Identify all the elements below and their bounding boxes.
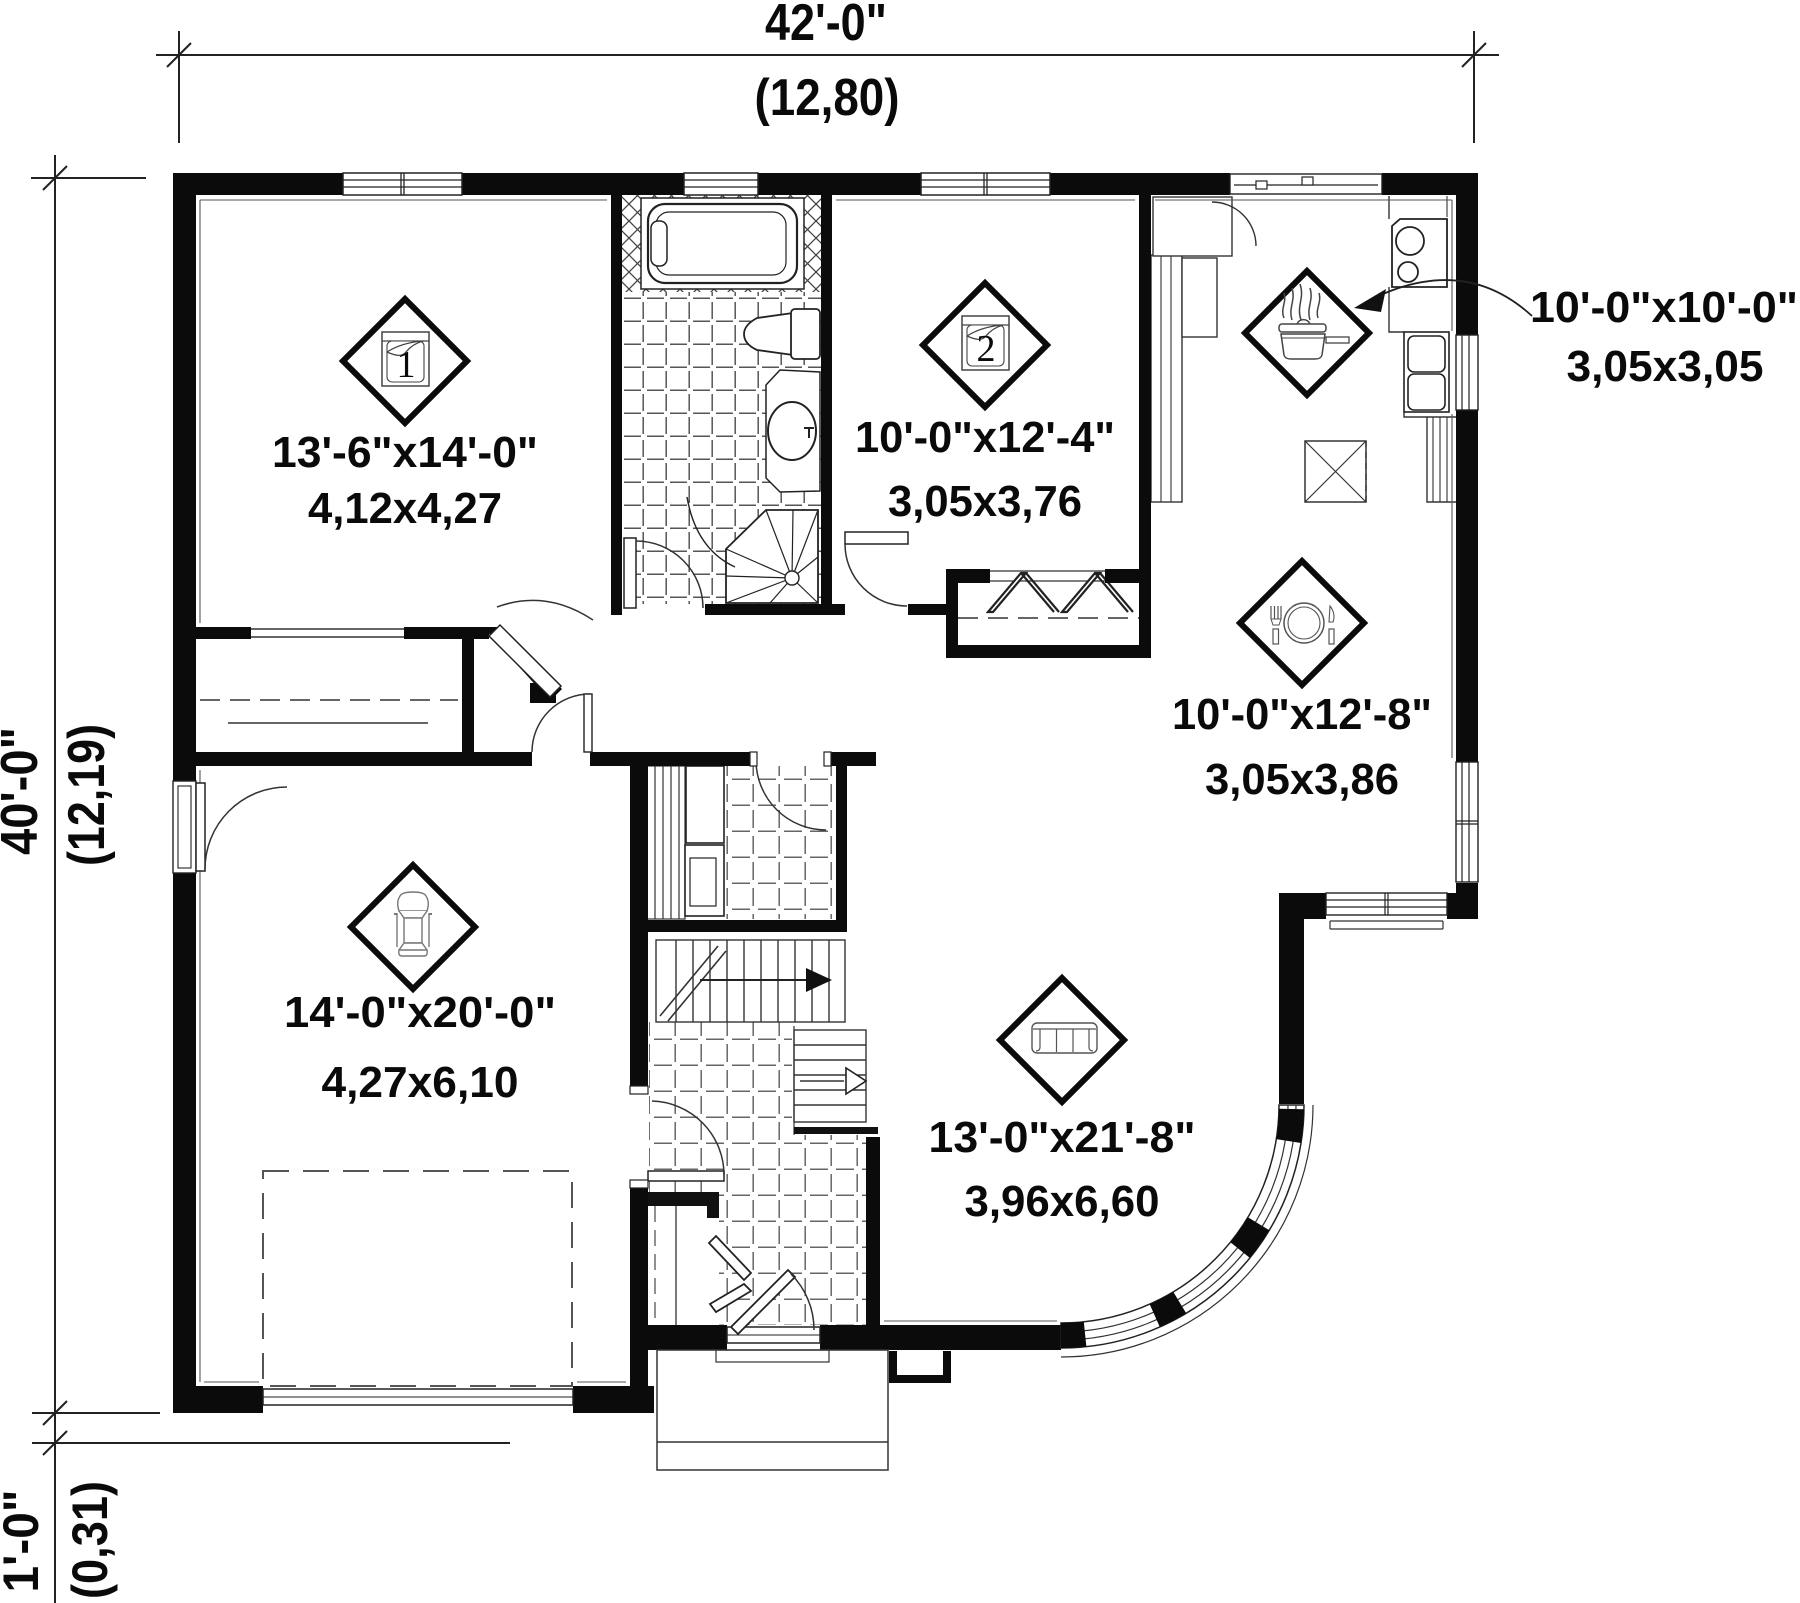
svg-text:1'-0": 1'-0" [0, 1490, 49, 1593]
svg-text:1: 1 [397, 344, 416, 386]
svg-text:(12,80): (12,80) [755, 69, 900, 127]
svg-text:3,05x3,05: 3,05x3,05 [1567, 342, 1764, 391]
svg-text:13'-6"x14'-0": 13'-6"x14'-0" [272, 428, 538, 477]
svg-text:42'-0": 42'-0" [765, 0, 887, 52]
svg-text:4,27x6,10: 4,27x6,10 [322, 1058, 519, 1107]
svg-text:40'-0": 40'-0" [0, 727, 49, 855]
svg-text:2: 2 [977, 328, 996, 370]
svg-text:(0,31): (0,31) [62, 1481, 118, 1599]
svg-text:3,05x3,76: 3,05x3,76 [888, 477, 1082, 526]
svg-text:4,12x4,27: 4,12x4,27 [308, 484, 502, 533]
svg-text:14'-0"x20'-0": 14'-0"x20'-0" [284, 988, 556, 1037]
svg-text:10'-0"x12'-8": 10'-0"x12'-8" [1172, 690, 1432, 739]
svg-text:10'-0"x12'-4": 10'-0"x12'-4" [855, 413, 1115, 462]
svg-text:3,96x6,60: 3,96x6,60 [965, 1177, 1160, 1226]
svg-text:(12,19): (12,19) [58, 724, 116, 866]
svg-text:3,05x3,86: 3,05x3,86 [1205, 755, 1399, 804]
svg-text:10'-0"x10'-0": 10'-0"x10'-0" [1530, 283, 1798, 332]
svg-text:13'-0"x21'-8": 13'-0"x21'-8" [929, 1113, 1196, 1162]
